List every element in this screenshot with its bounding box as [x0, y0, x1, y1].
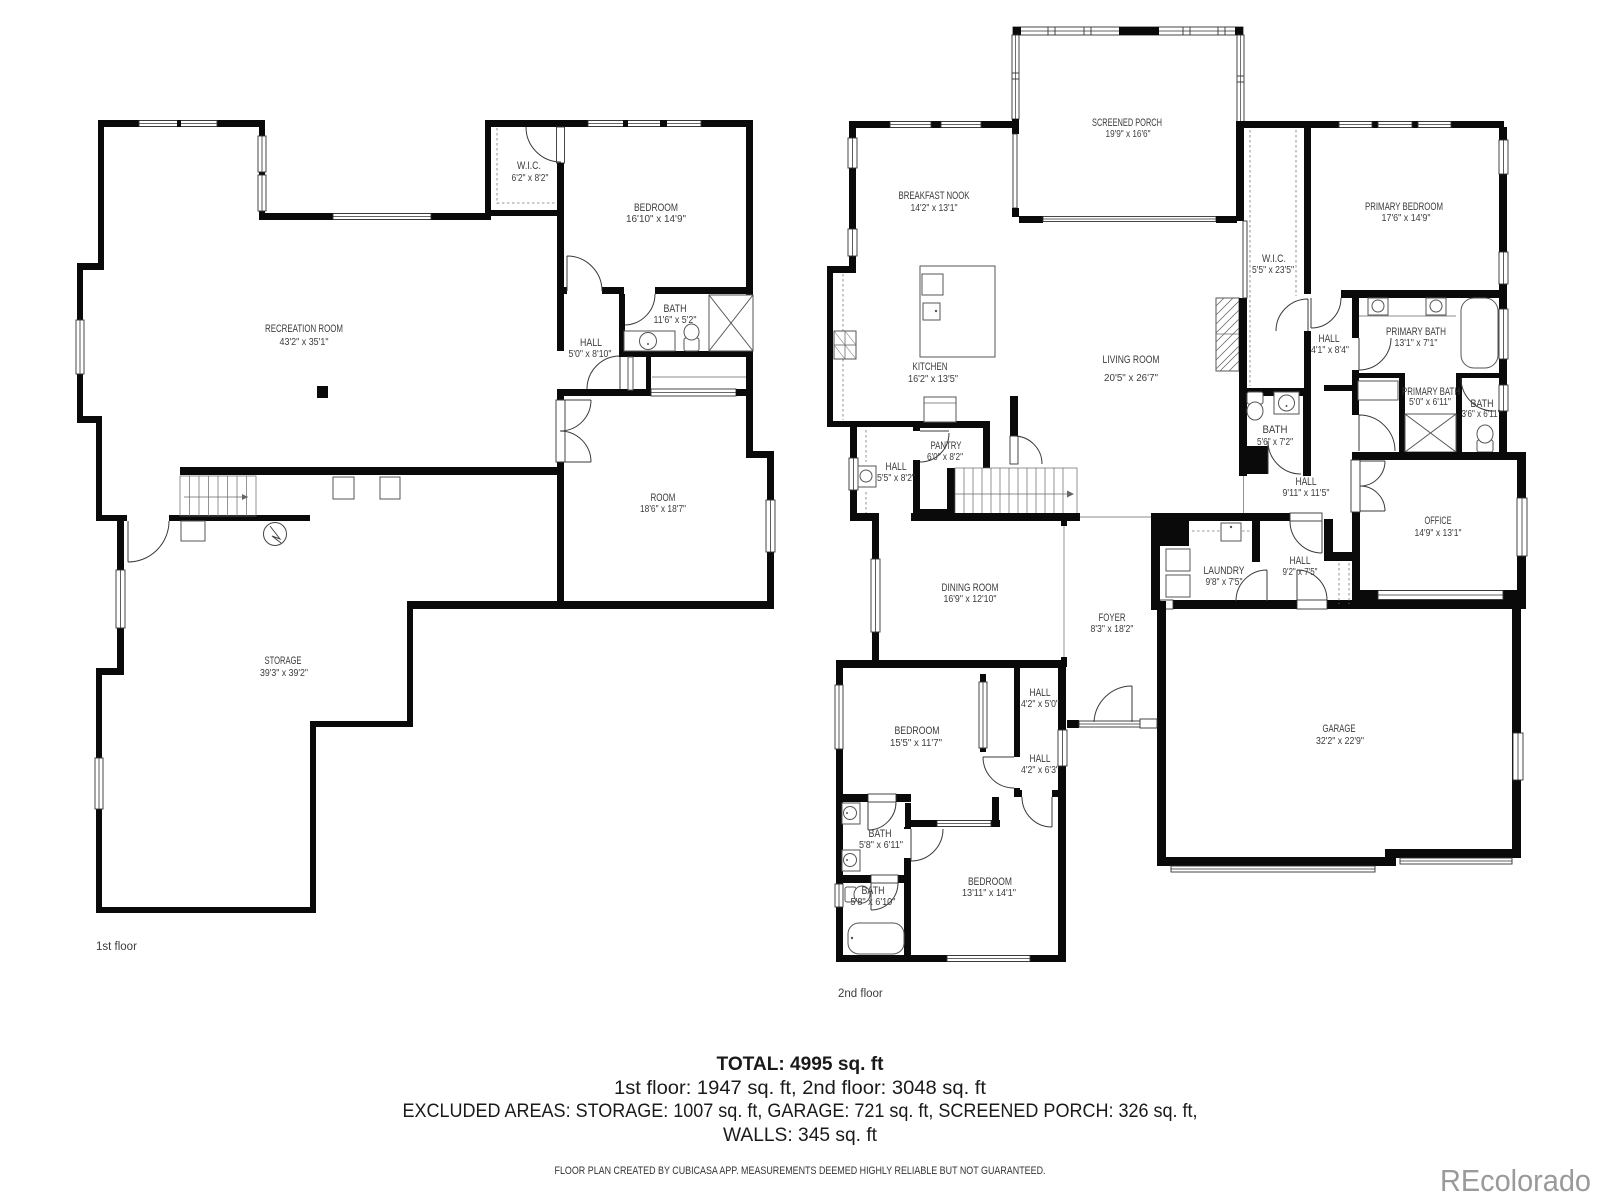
svg-text:1st floor: 1st floor — [96, 941, 137, 953]
svg-text:6'2" x 8'2": 6'2" x 8'2" — [512, 173, 549, 184]
svg-text:5'8" x 6'10": 5'8" x 6'10" — [851, 897, 896, 908]
svg-text:5'0" x 8'10": 5'0" x 8'10" — [569, 349, 612, 360]
svg-text:2nd floor: 2nd floor — [838, 988, 883, 1000]
svg-text:PRIMARY BEDROOM: PRIMARY BEDROOM — [1365, 201, 1443, 213]
svg-text:FOYER: FOYER — [1099, 612, 1126, 624]
svg-text:4'2" x 6'3": 4'2" x 6'3" — [1021, 765, 1059, 776]
svg-text:14'9" x 13'1": 14'9" x 13'1" — [1415, 528, 1462, 539]
svg-text:5'5" x 8'2": 5'5" x 8'2" — [877, 473, 915, 484]
svg-text:HALL: HALL — [1030, 753, 1051, 765]
svg-text:RECREATION ROOM: RECREATION ROOM — [265, 323, 343, 335]
svg-text:PANTRY: PANTRY — [931, 440, 962, 452]
svg-text:STORAGE: STORAGE — [265, 655, 302, 667]
svg-text:FLOOR PLAN CREATED BY CUBICASA: FLOOR PLAN CREATED BY CUBICASA APP. MEAS… — [555, 1165, 1046, 1177]
svg-text:4'2" x 5'0": 4'2" x 5'0" — [1021, 699, 1059, 710]
svg-text:BEDROOM: BEDROOM — [634, 202, 678, 214]
svg-text:BATH: BATH — [869, 828, 892, 840]
svg-text:13'1" x 7'1": 13'1" x 7'1" — [1395, 338, 1438, 349]
svg-text:9'2" x 7'5": 9'2" x 7'5" — [1283, 567, 1318, 578]
svg-text:KITCHEN: KITCHEN — [913, 361, 948, 373]
svg-text:43'2" x 35'1": 43'2" x 35'1" — [280, 337, 329, 348]
svg-text:19'9" x 16'6": 19'9" x 16'6" — [1106, 129, 1151, 140]
svg-text:DINING ROOM: DINING ROOM — [942, 582, 999, 594]
svg-text:5'0" x 6'11": 5'0" x 6'11" — [1409, 397, 1451, 408]
svg-text:13'11" x 14'1": 13'11" x 14'1" — [962, 888, 1016, 899]
svg-text:BATH: BATH — [1263, 424, 1288, 436]
svg-text:16'10" x 14'9": 16'10" x 14'9" — [626, 214, 686, 225]
svg-text:16'2" x 13'5": 16'2" x 13'5" — [908, 374, 958, 385]
svg-text:BATH: BATH — [862, 885, 885, 897]
svg-text:W.I.C.: W.I.C. — [517, 160, 541, 172]
svg-text:18'6" x 18'7": 18'6" x 18'7" — [640, 504, 686, 515]
svg-text:32'2" x 22'9": 32'2" x 22'9" — [1316, 736, 1364, 747]
svg-text:GARAGE: GARAGE — [1323, 723, 1356, 735]
svg-text:BEDROOM: BEDROOM — [895, 725, 940, 737]
svg-text:OFFICE: OFFICE — [1425, 515, 1452, 527]
svg-text:5'5" x 23'5": 5'5" x 23'5" — [1252, 265, 1294, 276]
svg-text:5'8" x 6'11": 5'8" x 6'11" — [859, 840, 903, 851]
svg-text:BREAKFAST NOOK: BREAKFAST NOOK — [899, 190, 970, 202]
svg-text:W.I.C.: W.I.C. — [1262, 253, 1286, 265]
svg-text:PRIMARY BATH: PRIMARY BATH — [1386, 326, 1446, 338]
svg-text:9'11" x 11'5": 9'11" x 11'5" — [1283, 488, 1330, 499]
svg-text:LAUNDRY: LAUNDRY — [1204, 565, 1245, 577]
svg-text:3'6" x 6'11": 3'6" x 6'11" — [1462, 409, 1501, 420]
svg-text:REcolorado: REcolorado — [1440, 1163, 1591, 1198]
svg-text:1st floor: 1947 sq. ft, 2nd fl: 1st floor: 1947 sq. ft, 2nd floor: 3048 … — [614, 1077, 987, 1099]
svg-text:14'2" x 13'1": 14'2" x 13'1" — [911, 203, 958, 214]
svg-text:BATH: BATH — [664, 303, 687, 315]
svg-text:4'1" x 8'4": 4'1" x 8'4" — [1311, 345, 1349, 356]
svg-text:6'0" x 8'2": 6'0" x 8'2" — [927, 452, 963, 463]
svg-text:9'8" x 7'5": 9'8" x 7'5" — [1206, 577, 1243, 588]
svg-text:HALL: HALL — [1296, 476, 1317, 488]
svg-text:HALL: HALL — [1030, 687, 1051, 699]
svg-text:5'6" x 7'2": 5'6" x 7'2" — [1257, 437, 1293, 448]
svg-text:11'6" x 5'2": 11'6" x 5'2" — [654, 315, 697, 326]
svg-text:ROOM: ROOM — [651, 492, 676, 504]
svg-text:8'3" x 18'2": 8'3" x 18'2" — [1091, 624, 1134, 635]
svg-text:15'5" x 11'7": 15'5" x 11'7" — [890, 738, 942, 749]
svg-text:39'3" x 39'2": 39'3" x 39'2" — [260, 668, 308, 679]
svg-text:LIVING ROOM: LIVING ROOM — [1103, 354, 1160, 366]
svg-text:SCREENED PORCH: SCREENED PORCH — [1092, 117, 1162, 129]
svg-text:HALL: HALL — [886, 461, 907, 473]
svg-text:HALL: HALL — [580, 337, 602, 349]
svg-text:EXCLUDED AREAS: STORAGE: 1007: EXCLUDED AREAS: STORAGE: 1007 sq. ft, GA… — [403, 1100, 1198, 1122]
svg-text:HALL: HALL — [1319, 333, 1340, 345]
svg-text:16'9" x 12'10": 16'9" x 12'10" — [944, 594, 997, 605]
svg-text:20'5" x 26'7": 20'5" x 26'7" — [1104, 373, 1158, 384]
svg-text:TOTAL: 4995 sq. ft: TOTAL: 4995 sq. ft — [717, 1053, 884, 1075]
svg-text:17'6" x 14'9": 17'6" x 14'9" — [1382, 213, 1431, 224]
svg-text:HALL: HALL — [1290, 555, 1311, 567]
svg-text:BEDROOM: BEDROOM — [968, 876, 1012, 888]
svg-text:WALLS: 345 sq. ft: WALLS: 345 sq. ft — [723, 1124, 878, 1146]
